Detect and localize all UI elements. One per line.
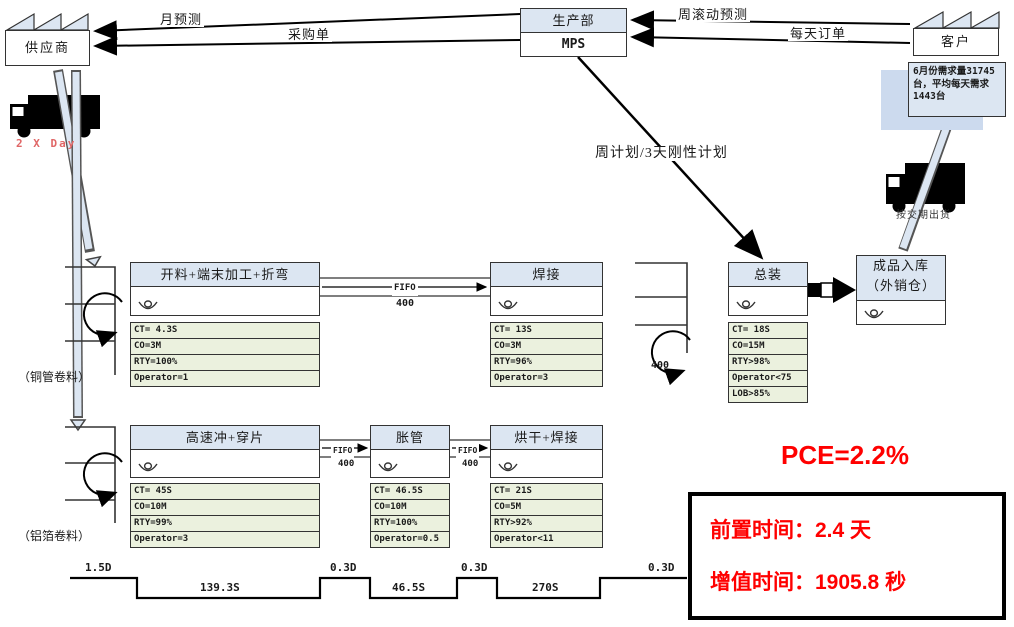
operator-icon [735,299,757,313]
metric: Operator<11 [491,532,602,547]
customer-factory-roof-icon [915,12,999,28]
metric: RTY=100% [371,516,449,532]
process-name: 胀管 [371,426,449,450]
purchase-order-label: 采购单 [286,27,332,42]
data-box-gaosuchong: CT= 45S CO=10M RTY=99% Operator=3 [130,483,320,548]
operator-icon [137,299,159,313]
timeline-label-process-2: 46.5S [392,581,425,594]
ship-by-due-date-label: 按交期出货 [896,206,951,221]
process-box-zhangguan: 胀管 [370,425,450,478]
customer-label: 客户 [914,29,998,55]
timeline-label-wait-3: 0.3D [461,561,488,574]
pce-value: PCE=2.2% [760,440,930,471]
aluminum-coil-label: （铝箔卷料） [18,527,90,544]
operator-icon [497,461,519,475]
vsm-diagram: 供应商 生产部 MPS 客户 6月份需求量31745台，平均每天需求1443台 … [0,0,1014,627]
monthly-forecast-label: 月预测 [158,12,204,27]
customer-box: 客户 [913,28,999,56]
inventory-shelf-aluminum [65,427,115,523]
timeline-label-wait-2: 0.3D [330,561,357,574]
timeline-label-process-3: 270S [532,581,559,594]
metric: CO=10M [131,500,319,516]
process-box-gaosuchong: 高速冲+穿片 [130,425,320,478]
supplier-box: 供应商 [5,30,90,66]
metric: CT= 46.5S [371,484,449,500]
fifo-label-2: FIFO [331,443,354,458]
timeline-label-wait-4: 0.3D [648,561,675,574]
metric: CO=15M [729,339,807,355]
metric: Operator=3 [131,532,319,547]
timeline-label-wait-1: 1.5D [85,561,112,574]
fifo-qty-1: 400 [396,298,414,309]
fifo-qty-2: 400 [338,459,354,469]
metric: CT= 21S [491,484,602,500]
data-box-zhangguan: CT= 46.5S CO=10M RTY=100% Operator=0.5 [370,483,450,548]
metric: Operator=3 [491,371,602,386]
metric: Operator=0.5 [371,532,449,547]
data-box-honggan: CT= 21S CO=5M RTY>92% Operator<11 [490,483,603,548]
value-added-time-text: 增值时间：1905.8 秒 [710,566,1002,596]
copper-coil-label: （铜管卷料） [18,368,90,385]
metric: CT= 18S [729,323,807,339]
warehouse-label-line2: （外销仓） [857,276,945,296]
lead-time-text: 前置时间：2.4 天 [710,514,1002,544]
process-name: 开料+端末加工+折弯 [131,263,319,287]
process-box-kailiao: 开料+端末加工+折弯 [130,262,320,316]
metric: CO=10M [371,500,449,516]
metric: LOB>85% [729,387,807,402]
daily-order-label: 每天订单 [788,26,848,41]
fifo-qty-3: 400 [462,459,478,469]
demand-note-box: 6月份需求量31745台，平均每天需求1443台 [908,62,1006,117]
process-name: 高速冲+穿片 [131,426,319,450]
supplier-label: 供应商 [6,31,89,65]
daily-order-arrow [634,37,910,43]
demand-note-text: 6月份需求量31745台，平均每天需求1443台 [913,66,1001,104]
weekly-plan-label: 周计划/3天刚性计划 [593,146,730,161]
fifo-label-1: FIFO [392,281,418,296]
production-dept-box: 生产部 MPS [520,8,627,57]
metric: CO=5M [491,500,602,516]
process-box-zongzhuang: 总装 [728,262,808,316]
supplier-truck-icon [10,95,100,138]
metric: RTY>92% [491,516,602,532]
data-box-hanjie: CT= 13S CO=3M RTY=96% Operator=3 [490,322,603,387]
push-arrow [808,277,856,303]
metric: RTY>98% [729,355,807,371]
operator-icon [137,461,159,475]
process-name: 焊接 [491,263,602,287]
operator-icon [863,308,885,322]
metric: RTY=100% [131,355,319,371]
operator-icon [497,299,519,313]
loop-arrow-copper [84,293,122,335]
inventory-shelf-mid [635,263,687,353]
metric: CO=3M [491,339,602,355]
process-name: 总装 [729,263,807,287]
mid-inventory-qty: 400 [651,360,669,371]
supplier-delivery-frequency-label: 2 X Day [16,137,76,150]
timeline [70,578,687,598]
metric: RTY=99% [131,516,319,532]
metric: CT= 4.3S [131,323,319,339]
warehouse-label-line1: 成品入库 [857,256,945,276]
process-box-hanjie: 焊接 [490,262,603,316]
summary-box: 前置时间：2.4 天 增值时间：1905.8 秒 [688,492,1006,620]
metric: CO=3M [131,339,319,355]
production-dept-label: 生产部 [521,9,626,33]
timeline-label-process-1: 139.3S [200,581,240,594]
data-box-zongzhuang: CT= 18S CO=15M RTY>98% Operator<75 LOB>8… [728,322,808,403]
warehouse-box: 成品入库 （外销仓） [856,255,946,325]
loop-arrow-aluminum [84,453,122,495]
process-name: 烘干+焊接 [491,426,602,450]
metric: RTY=96% [491,355,602,371]
operator-icon [377,461,399,475]
mps-label: MPS [521,33,626,57]
weekly-rolling-forecast-label: 周滚动预测 [676,7,750,22]
data-box-kailiao: CT= 4.3S CO=3M RTY=100% Operator=1 [130,322,320,387]
supplier-factory-roof-icon [7,14,88,30]
metric: Operator=1 [131,371,319,386]
process-box-honggan: 烘干+焊接 [490,425,603,478]
fifo-label-3: FIFO [456,443,479,458]
metric: Operator<75 [729,371,807,387]
metric: CT= 45S [131,484,319,500]
metric: CT= 13S [491,323,602,339]
